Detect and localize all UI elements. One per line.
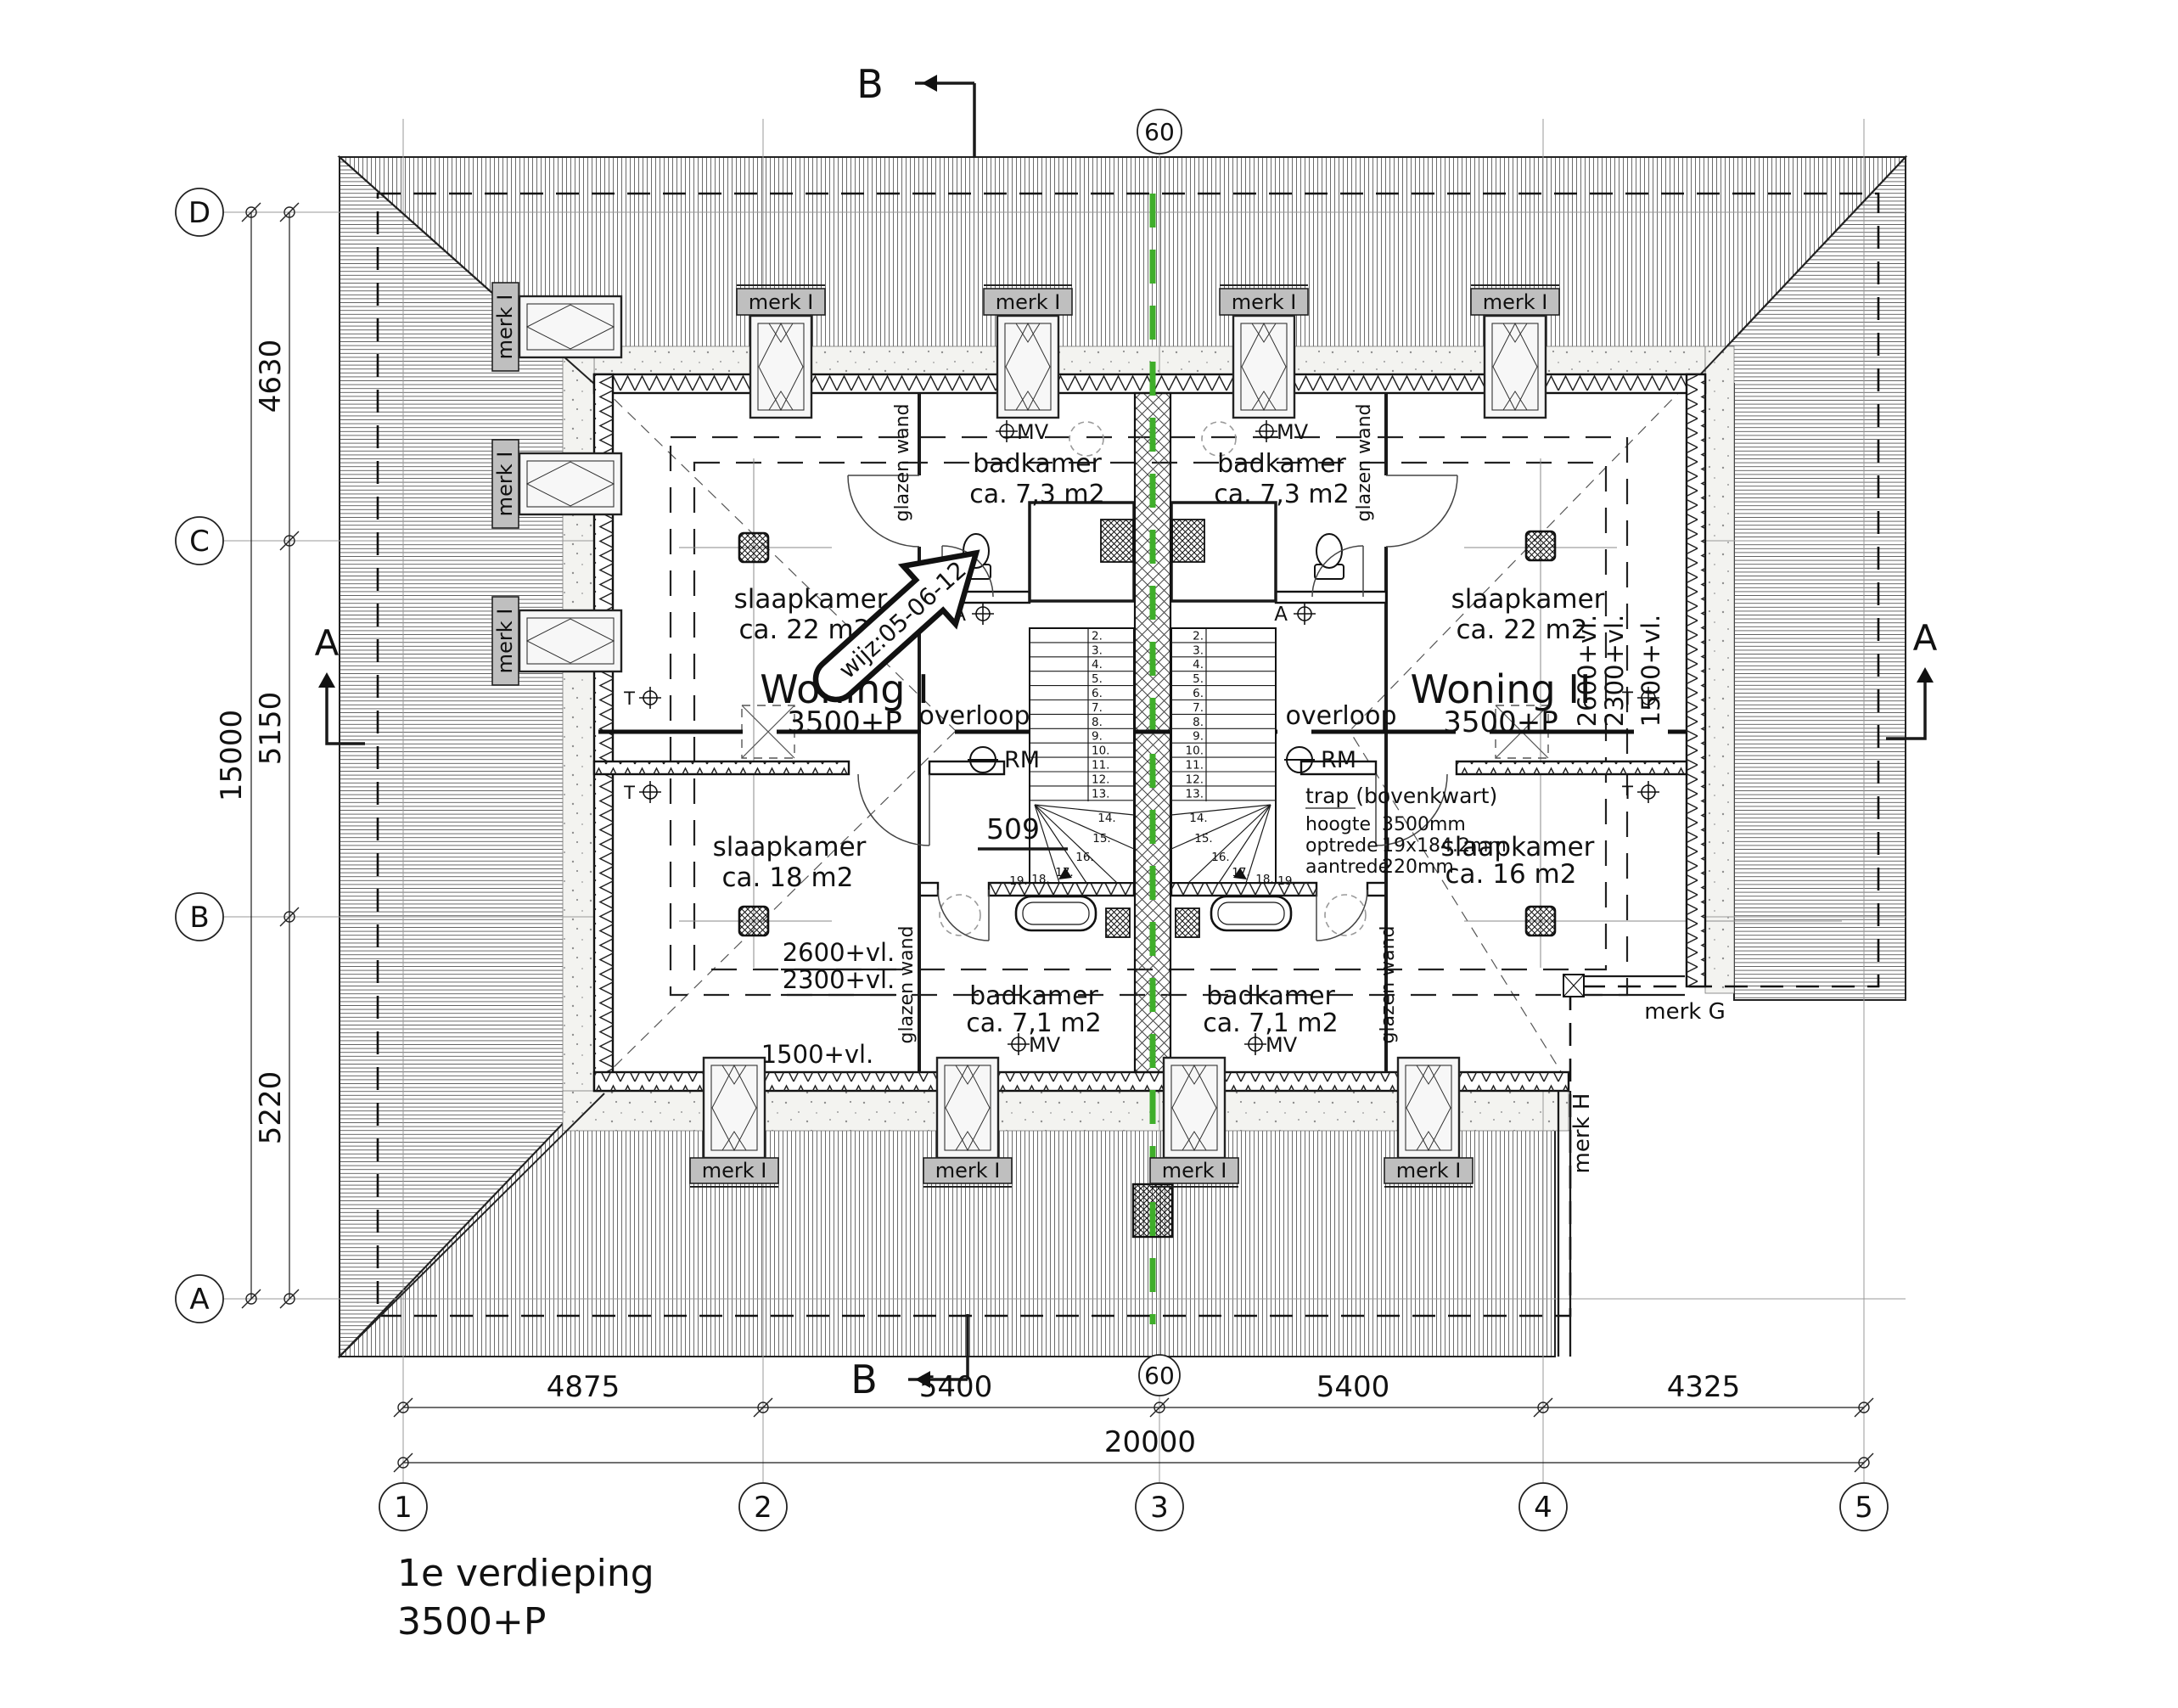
svg-text:19.: 19. xyxy=(1277,874,1295,888)
svg-text:2.: 2. xyxy=(1193,629,1204,643)
level-1500-right: 1500+vl. xyxy=(1636,615,1665,728)
grid-bubble-C: C xyxy=(176,517,223,565)
svg-text:4.: 4. xyxy=(1193,658,1204,671)
svg-text:5.: 5. xyxy=(1092,672,1103,686)
svg-text:220mm: 220mm xyxy=(1382,857,1454,878)
mv-label: MV xyxy=(1017,420,1049,444)
svg-text:hoogte: hoogte xyxy=(1305,814,1371,835)
svg-text:8.: 8. xyxy=(1193,716,1204,729)
offset-60-bottom: 60 xyxy=(1139,1355,1180,1396)
level-2600-left: 2600+vl. xyxy=(783,938,895,967)
svg-text:RM: RM xyxy=(1321,747,1356,773)
floor-plan-drawing: merk I merk I merk I xyxy=(0,0,2178,1708)
svg-text:7.: 7. xyxy=(1092,701,1103,715)
grid-bubble-B: B xyxy=(176,893,223,941)
svg-text:ca. 16 m2: ca. 16 m2 xyxy=(1445,859,1577,890)
svg-text:13.: 13. xyxy=(1186,787,1204,801)
room-label-slaapkamer-tr: slaapkamer xyxy=(1451,584,1605,615)
svg-text:15.: 15. xyxy=(1194,832,1212,846)
svg-text:3.: 3. xyxy=(1092,643,1103,657)
bathtub-left xyxy=(1016,896,1096,930)
grid-bubble-A: A xyxy=(176,1275,223,1323)
svg-text:3.: 3. xyxy=(1193,643,1204,657)
svg-text:RM: RM xyxy=(1004,747,1040,773)
shaft-right xyxy=(1172,520,1204,562)
svg-text:10.: 10. xyxy=(1186,744,1204,758)
svg-text:14.: 14. xyxy=(1097,812,1115,825)
dim-20000: 20000 xyxy=(1104,1425,1196,1459)
svg-text:10.: 10. xyxy=(1092,744,1109,758)
glazen-wand-label: glazen wand xyxy=(1378,926,1399,1044)
svg-text:A: A xyxy=(315,622,340,664)
glazen-wand-label: glazen wand xyxy=(896,926,918,1044)
svg-text:B: B xyxy=(189,901,209,935)
title-line2: 3500+P xyxy=(397,1600,546,1643)
bathtub-right xyxy=(1211,896,1291,930)
grid-bubble-3: 3 xyxy=(1136,1483,1183,1531)
room-label-slaapkamer-bl: slaapkamer xyxy=(713,832,867,862)
a-point: A xyxy=(1274,604,1288,626)
svg-text:A: A xyxy=(1913,617,1938,659)
svg-text:13.: 13. xyxy=(1092,787,1109,801)
svg-text:19x184.2mm: 19x184.2mm xyxy=(1382,835,1507,857)
svg-text:B: B xyxy=(856,61,884,107)
level-1500-left: 1500+vl. xyxy=(761,1040,874,1069)
mv-label: MV xyxy=(1277,420,1309,444)
room-label-overloop-left: overloop xyxy=(919,701,1030,731)
svg-text:4: 4 xyxy=(1534,1491,1552,1525)
merk-g-label: merk G xyxy=(1644,999,1725,1025)
svg-text:9.: 9. xyxy=(1193,730,1204,744)
svg-text:ca. 7,1 m2: ca. 7,1 m2 xyxy=(1203,1009,1339,1038)
svg-text:B: B xyxy=(850,1357,878,1402)
drawing-title: 1e verdieping 3500+P xyxy=(397,1552,654,1643)
svg-text:9.: 9. xyxy=(1092,730,1103,744)
room-label-slaapkamer-tl: slaapkamer xyxy=(734,584,888,615)
svg-text:6.: 6. xyxy=(1193,687,1204,700)
svg-text:3: 3 xyxy=(1150,1491,1169,1525)
svg-text:ca. 7,3 m2: ca. 7,3 m2 xyxy=(1214,480,1350,509)
merk-h-label: merk H xyxy=(1569,1093,1595,1174)
dim-4325: 4325 xyxy=(1667,1370,1741,1404)
svg-text:5: 5 xyxy=(1855,1491,1873,1525)
dim-5150: 5150 xyxy=(254,692,288,766)
svg-text:14.: 14. xyxy=(1189,812,1207,825)
svg-text:ca. 7,1 m2: ca. 7,1 m2 xyxy=(966,1009,1102,1038)
level-2300-left: 2300+vl. xyxy=(783,965,895,994)
floor-plan-page: merk I merk I merk I xyxy=(0,0,2178,1708)
svg-text:5.: 5. xyxy=(1193,672,1204,686)
svg-text:7.: 7. xyxy=(1193,701,1204,715)
stair-ref-509: 509 xyxy=(986,812,1040,846)
grid-bubble-D: D xyxy=(176,188,223,236)
room-label-badkamer-br: badkamer xyxy=(1206,981,1335,1011)
room-label-badkamer-bl: badkamer xyxy=(969,981,1098,1011)
svg-text:18.: 18. xyxy=(1031,873,1049,886)
svg-text:11.: 11. xyxy=(1092,759,1109,773)
svg-text:A: A xyxy=(189,1283,209,1317)
svg-text:11.: 11. xyxy=(1186,759,1204,773)
dim-15000: 15000 xyxy=(215,710,249,801)
room-label-badkamer-tr: badkamer xyxy=(1217,449,1346,479)
grid-bubble-1: 1 xyxy=(379,1483,427,1531)
offset-60-top: 60 xyxy=(1137,110,1182,154)
level-2600-right: 2600+vl. xyxy=(1573,615,1602,728)
dim-5400-left: 5400 xyxy=(919,1370,993,1404)
svg-text:12.: 12. xyxy=(1186,773,1204,786)
svg-text:19.: 19. xyxy=(1009,874,1027,888)
svg-text:ca. 7,3 m2: ca. 7,3 m2 xyxy=(969,480,1105,509)
dim-4630: 4630 xyxy=(254,340,288,413)
svg-text:12.: 12. xyxy=(1092,773,1109,786)
svg-text:ca. 22 m2: ca. 22 m2 xyxy=(1457,615,1588,645)
svg-text:60: 60 xyxy=(1144,1362,1175,1390)
svg-text:8.: 8. xyxy=(1092,716,1103,729)
t-point: T xyxy=(623,783,635,803)
room-label-badkamer-tl: badkamer xyxy=(973,449,1102,479)
svg-text:6.: 6. xyxy=(1092,687,1103,700)
section-marker-b-top: B xyxy=(856,61,974,158)
svg-text:trap (bovenkwart): trap (bovenkwart) xyxy=(1305,784,1497,808)
svg-text:2: 2 xyxy=(754,1491,772,1525)
svg-text:18.: 18. xyxy=(1255,873,1273,886)
svg-text:C: C xyxy=(189,525,210,559)
shaft-left xyxy=(1101,520,1133,562)
svg-text:D: D xyxy=(188,196,211,230)
glazen-wand-label: glazen wand xyxy=(892,404,913,522)
svg-text:ca. 18 m2: ca. 18 m2 xyxy=(722,862,854,893)
glazen-wand-label: glazen wand xyxy=(1354,404,1375,522)
dimensions-left: 4630 5150 5220 15000 xyxy=(215,203,299,1308)
t-point: T xyxy=(623,688,635,709)
svg-text:3500mm: 3500mm xyxy=(1382,814,1466,835)
svg-text:15.: 15. xyxy=(1092,832,1110,846)
svg-text:optrede: optrede xyxy=(1305,835,1378,857)
t-point: T xyxy=(1621,783,1633,803)
svg-text:3500+P: 3500+P xyxy=(787,705,902,739)
title-line1: 1e verdieping xyxy=(397,1552,654,1595)
svg-text:3500+P: 3500+P xyxy=(1443,705,1558,739)
grid-bubble-4: 4 xyxy=(1519,1483,1567,1531)
dimensions-bottom: 4875 5400 5400 4325 20000 xyxy=(394,1370,1873,1472)
level-2300-right: 2300+vl. xyxy=(1600,615,1629,728)
svg-text:aantrede: aantrede xyxy=(1305,857,1389,878)
grid-bubble-5: 5 xyxy=(1840,1483,1888,1531)
svg-text:1: 1 xyxy=(394,1491,413,1525)
dim-4875: 4875 xyxy=(547,1370,620,1404)
svg-text:60: 60 xyxy=(1144,118,1175,146)
room-label-overloop-right: overloop xyxy=(1286,701,1397,731)
svg-text:4.: 4. xyxy=(1092,658,1103,671)
dim-5400-right: 5400 xyxy=(1316,1370,1390,1404)
grid-bubble-2: 2 xyxy=(739,1483,787,1531)
svg-text:2.: 2. xyxy=(1092,629,1103,643)
dim-5220: 5220 xyxy=(254,1071,288,1145)
